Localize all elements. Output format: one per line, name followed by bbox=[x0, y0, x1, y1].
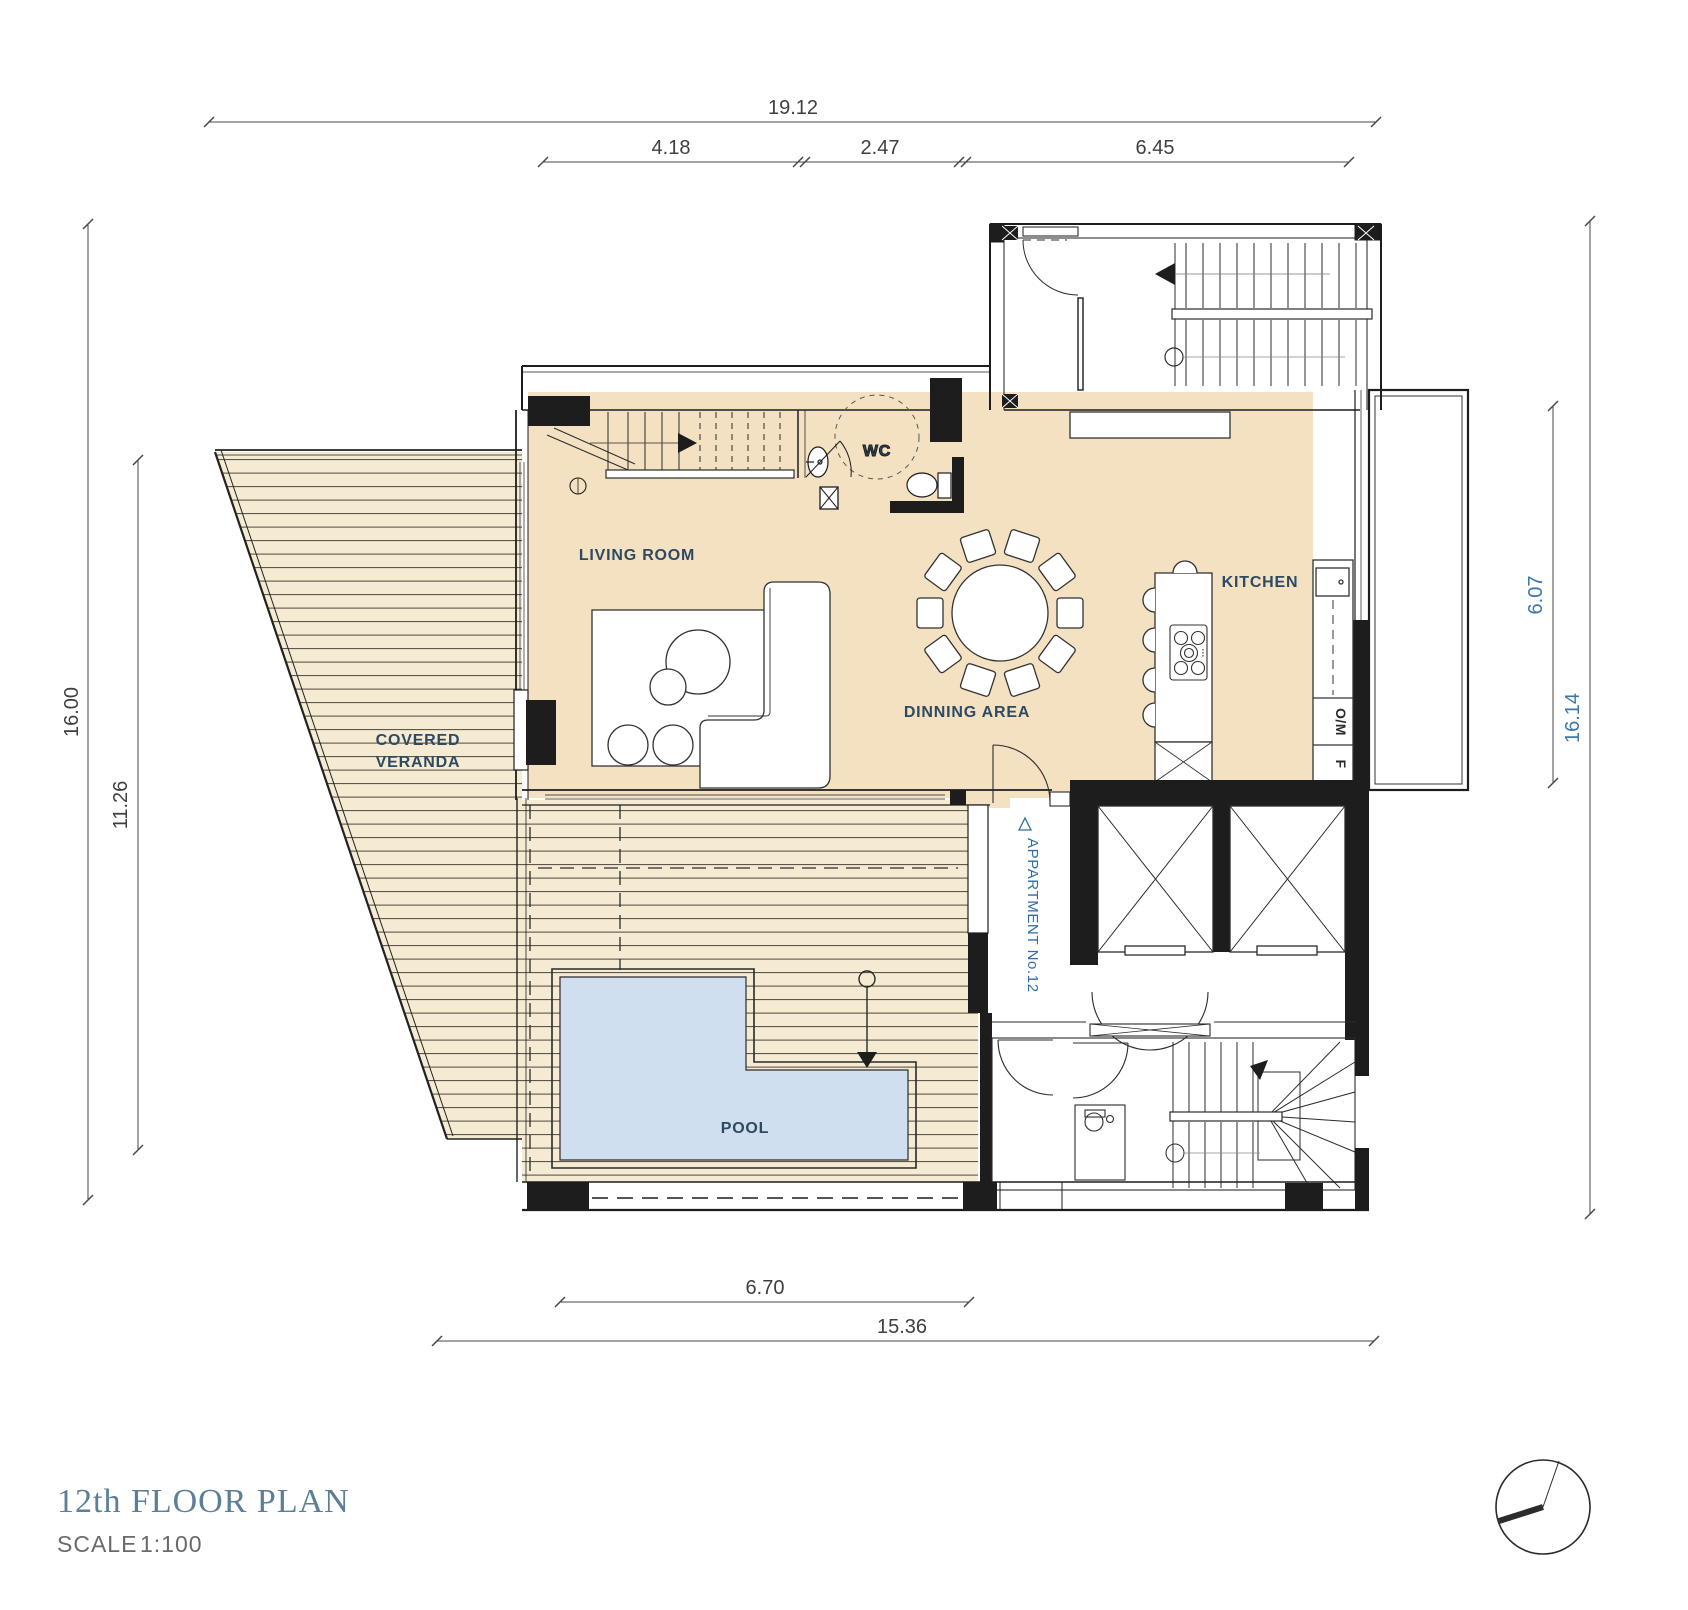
dim-top-seg2: 2.47 bbox=[861, 137, 900, 159]
lobby bbox=[992, 992, 1355, 1050]
pool-label: POOL bbox=[721, 1120, 770, 1137]
column-marker bbox=[820, 487, 838, 509]
dim-left-inner: 11.26 bbox=[110, 781, 132, 830]
kitchen-label: KITCHEN bbox=[1222, 574, 1299, 591]
elevator-shaft bbox=[1230, 806, 1345, 955]
elevator-shaft bbox=[1098, 806, 1213, 955]
veranda-label-line2: VERANDA bbox=[376, 754, 461, 771]
dim-right-inner: 6.07 bbox=[1525, 576, 1547, 615]
dining-table bbox=[952, 565, 1048, 661]
dim-top-seg3: 6.45 bbox=[1136, 137, 1175, 159]
oven-microwave-label: O/M bbox=[1333, 708, 1349, 736]
hob bbox=[1170, 625, 1207, 680]
dining-label: DINNING AREA bbox=[904, 704, 1030, 721]
veranda-label-line1: COVERED bbox=[376, 732, 461, 749]
dim-right-outer: 16.14 bbox=[1562, 693, 1584, 743]
apartment-label: APPARTMENT No.12 bbox=[1024, 838, 1041, 993]
dim-left-outer: 16.00 bbox=[61, 687, 83, 737]
sheet-title: 12th FLOOR PLAN bbox=[57, 1483, 350, 1520]
pouf bbox=[653, 725, 693, 765]
round-table-small bbox=[650, 669, 686, 705]
fridge-label: F bbox=[1333, 759, 1349, 768]
cleaning-sink bbox=[1085, 1110, 1114, 1131]
stair-block-doors bbox=[998, 1040, 1128, 1098]
elevator-core bbox=[1070, 780, 1369, 1040]
living-room-furniture bbox=[592, 582, 830, 788]
vent-grille bbox=[1090, 1024, 1210, 1036]
kitchen-counter-top bbox=[1070, 412, 1230, 438]
dim-top-overall: 19.12 bbox=[768, 97, 818, 119]
island-cabinet bbox=[1155, 742, 1212, 782]
dim-bottom-outer: 15.36 bbox=[877, 1316, 927, 1338]
scale-label: SCALE bbox=[57, 1531, 137, 1557]
kitchen-wall-counter bbox=[1313, 560, 1353, 782]
dim-top-seg1: 4.18 bbox=[652, 137, 691, 159]
dim-bottom-inner: 6.70 bbox=[746, 1277, 785, 1299]
wc-label: WC bbox=[863, 443, 891, 460]
bottom-wall-band bbox=[522, 1182, 1369, 1210]
floor-plan-canvas: POOL bbox=[0, 0, 1688, 1610]
title-block: 12th FLOOR PLAN SCALE 1:100 bbox=[57, 1483, 350, 1557]
apartment-direction-label: APPARTMENT No.12 bbox=[1019, 818, 1041, 993]
tower-entry-door bbox=[1023, 227, 1078, 295]
floor-plan-sheet: POOL bbox=[0, 0, 1688, 1610]
cleaning-room bbox=[1075, 1105, 1125, 1180]
north-arrow bbox=[1496, 1460, 1590, 1554]
tower-staircase bbox=[1155, 243, 1372, 386]
scale-value: 1:100 bbox=[140, 1531, 203, 1557]
stair-direction-arrow bbox=[1155, 263, 1175, 285]
living-room-label: LIVING ROOM bbox=[579, 547, 695, 564]
wc-toilet bbox=[907, 473, 951, 498]
pouf bbox=[608, 725, 648, 765]
right-balcony bbox=[1369, 390, 1468, 790]
lower-staircase bbox=[1166, 1042, 1355, 1188]
